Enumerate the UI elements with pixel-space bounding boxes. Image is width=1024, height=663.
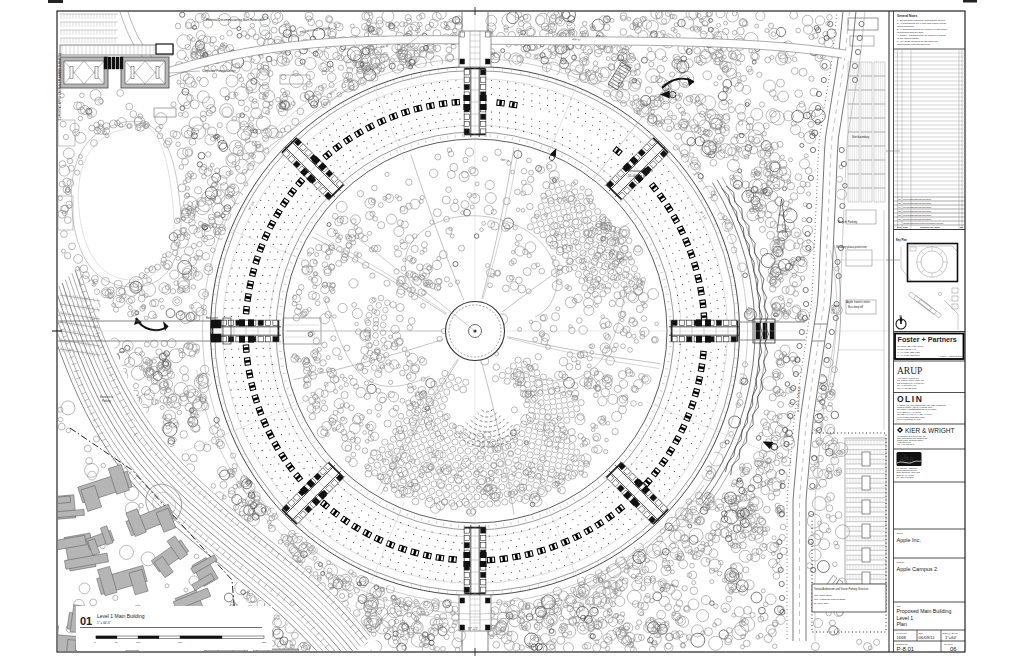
svg-text:Key Plan: Key Plan <box>896 238 907 242</box>
svg-text:600 Auditorium Parking Stalls: 600 Auditorium Parking Stalls <box>814 598 846 601</box>
svg-text:Reason For Issue: Reason For Issue <box>920 226 941 229</box>
svg-text:Bus drop off: Bus drop off <box>848 305 863 309</box>
svg-text:Corporate Fitness Center: Corporate Fitness Center <box>202 69 236 73</box>
svg-text:approximate and indicative onl: approximate and indicative only. <box>897 43 931 46</box>
svg-text:55,000 sq ft: 55,000 sq ft <box>628 174 645 178</box>
svg-text:Planning Revision: Planning Revision <box>912 210 932 213</box>
svg-text:P-8.01: P-8.01 <box>897 646 915 652</box>
svg-text:Proposed Main Building: Proposed Main Building <box>897 608 952 614</box>
svg-text:Planning Revision: Planning Revision <box>912 198 932 201</box>
svg-text:100': 100' <box>136 641 141 644</box>
svg-text:Date: Date <box>919 632 924 634</box>
svg-text:Level 1: Level 1 <box>897 615 914 621</box>
svg-text:200': 200' <box>262 641 267 644</box>
svg-text:97'-1.5": 97'-1.5" <box>468 627 478 631</box>
svg-text:06/09/11: 06/09/11 <box>919 635 936 640</box>
svg-text:Planning Revision: Planning Revision <box>912 202 932 205</box>
svg-text:Rev: Rev <box>897 226 902 229</box>
svg-text:Client: Client <box>897 532 903 535</box>
svg-text:Foster + Partners: Foster + Partners <box>898 335 957 344</box>
svg-text:1668: 1668 <box>897 635 907 640</box>
svg-text:© Foster + Partners 2010: © Foster + Partners 2010 <box>938 355 963 357</box>
svg-text:Bicycle Parking: Bicycle Parking <box>838 220 858 224</box>
svg-text:Planning Revision: Planning Revision <box>912 206 932 209</box>
svg-text:T +44 (0)20 7738 0455: T +44 (0)20 7738 0455 <box>898 351 921 353</box>
svg-text:Revision: Revision <box>944 643 953 645</box>
svg-text:London SW11 4AN: London SW11 4AN <box>898 348 917 350</box>
svg-text:Fax +1 415 957 9096: Fax +1 415 957 9096 <box>897 387 918 389</box>
svg-text:50': 50' <box>115 641 119 644</box>
svg-text:Entrance: Entrance <box>206 316 218 320</box>
svg-text:Project: Project <box>897 561 905 564</box>
svg-text:1"=64': 1"=64' <box>945 635 957 640</box>
svg-text:150': 150' <box>178 641 183 644</box>
svg-text:Level 1 Main Building: Level 1 Main Building <box>97 613 145 619</box>
svg-text:Apple Inc.: Apple Inc. <box>897 537 922 543</box>
svg-text:General Notes: General Notes <box>897 14 918 18</box>
svg-text:Restaurant space: Restaurant space <box>628 169 653 173</box>
svg-text:06: 06 <box>950 646 957 652</box>
svg-text:Entrance to: Entrance to <box>100 395 114 399</box>
svg-text:24' drive aisle: 24' drive aisle <box>814 602 829 605</box>
svg-text:--: -- <box>898 222 900 225</box>
svg-text:Ph: (510) 540 5008: Ph: (510) 540 5008 <box>897 476 915 478</box>
svg-text:Planned Development Permit: Planned Development Permit <box>912 222 943 225</box>
svg-text:1" = 64'-0": 1" = 64'-0" <box>97 621 111 625</box>
svg-text:180 Visitor Stalls: 180 Visitor Stalls <box>814 594 833 597</box>
svg-text:CUPERTINO APPLE CAMPUS 2 PLAN: CUPERTINO APPLE CAMPUS 2 PLANNING SUBMIT… <box>58 52 62 120</box>
svg-text:Fax (408) 727 5641: Fax (408) 727 5641 <box>897 443 915 445</box>
svg-text:01: 01 <box>80 615 92 627</box>
svg-text:Date: Date <box>903 226 909 229</box>
svg-text:Plan: Plan <box>897 621 907 627</box>
svg-text:Shading plaza protection: Shading plaza protection <box>836 245 867 249</box>
svg-text:F +44 (0)20 7738 1107: F +44 (0)20 7738 1107 <box>898 354 921 356</box>
svg-text:Planning Revision: Planning Revision <box>912 218 932 221</box>
svg-text:Tantau Auditorium and Visitor: Tantau Auditorium and Visitor Parking St… <box>814 587 869 591</box>
svg-text:OLIN: OLIN <box>897 394 923 404</box>
svg-text:KIER & WRIGHT: KIER & WRIGHT <box>905 427 955 434</box>
svg-text:Site boundary: Site boundary <box>852 135 870 139</box>
svg-text:ARUP: ARUP <box>897 366 922 376</box>
svg-text:Project No.: Project No. <box>897 632 908 634</box>
svg-text:Potential Decommissioning Barn: Potential Decommissioning Barn Relocatio… <box>206 18 265 22</box>
svg-text:Apple Campus 2: Apple Campus 2 <box>897 566 938 572</box>
svg-text:Apple transit center: Apple transit center <box>846 300 870 304</box>
svg-text:Drawing No.: Drawing No. <box>897 643 909 645</box>
svg-text:Planning Revision: Planning Revision <box>912 214 932 217</box>
svg-text:Parking: Parking <box>102 399 111 403</box>
